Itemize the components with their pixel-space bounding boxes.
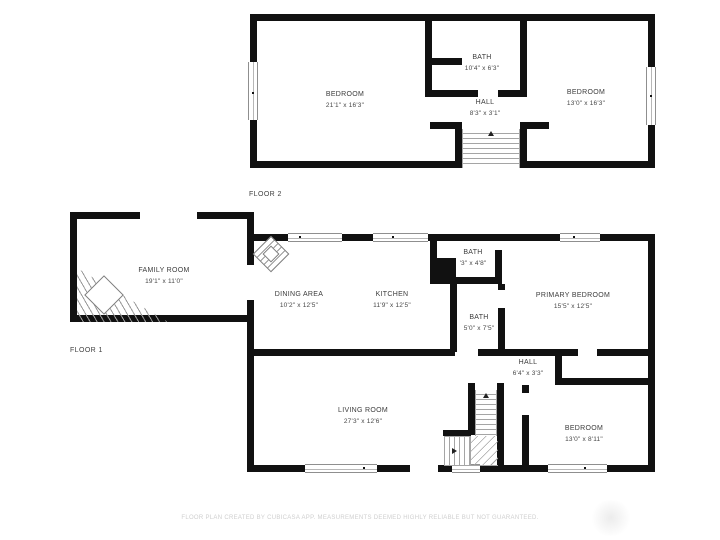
room-dimensions: 27'3" x 12'6" [338, 416, 388, 427]
wall [425, 58, 462, 65]
room-dimensions: 13'0" x 16'3" [567, 98, 605, 109]
room-name: DINING AREA [275, 289, 323, 300]
dimension-tick [344, 164, 346, 166]
wall [497, 383, 504, 467]
room-name: BEDROOM [326, 89, 364, 100]
wall [520, 122, 527, 168]
room-label-primary-bedroom: PRIMARY BEDROOM 15'5" x 12'5" [536, 290, 610, 312]
wall [197, 212, 254, 219]
wall [478, 349, 578, 356]
wall [555, 378, 648, 385]
window [248, 62, 258, 120]
window [560, 233, 600, 242]
dimension-tick [650, 95, 652, 97]
wall [247, 300, 254, 472]
wall [522, 385, 529, 393]
stair-direction-arrow-icon [452, 448, 457, 454]
room-label-bath-f2: BATH 10'4" x 6'3" [465, 52, 499, 74]
dimension-tick [164, 317, 166, 319]
wall [250, 161, 462, 168]
fireplace-core [263, 246, 280, 263]
wall [70, 212, 77, 322]
room-label-dining-area: DINING AREA 10'2" x 12'5" [275, 289, 323, 311]
room-name: HALL [513, 357, 544, 368]
room-dimensions: 13'0" x 8'11" [565, 434, 603, 445]
wall [247, 212, 254, 265]
dimension-tick [299, 236, 301, 238]
wall [520, 14, 527, 96]
room-name: KITCHEN [373, 289, 411, 300]
floor-1-label: FLOOR 1 [70, 347, 103, 354]
room-name: BATH [465, 52, 499, 63]
dimension-tick [363, 467, 365, 469]
cubicasa-watermark [590, 500, 632, 536]
wall [468, 383, 475, 435]
room-label-living-room: LIVING ROOM 27'3" x 12'6" [338, 405, 388, 427]
dimension-tick [252, 92, 254, 94]
wall [455, 122, 462, 168]
room-name: BATH [464, 312, 495, 323]
room-dimensions: 5'0" x 7'5" [464, 323, 495, 334]
dimension-tick [584, 467, 586, 469]
disclaimer-text: FLOOR PLAN CREATED BY CUBICASA APP. MEAS… [181, 515, 538, 521]
wall [250, 14, 655, 21]
room-label-hall-f2: HALL 8'3" x 3'1" [470, 97, 501, 119]
winder-stairs [470, 436, 498, 466]
dimension-tick [573, 236, 575, 238]
room-label-bedroom-f1: BEDROOM 13'0" x 8'11" [565, 423, 603, 445]
wall [597, 349, 648, 356]
room-dimensions: 15'5" x 12'5" [536, 301, 610, 312]
room-dimensions: 8'3" x 3'1" [470, 108, 501, 119]
wall [498, 90, 527, 97]
room-name: BATH [460, 247, 487, 258]
window [305, 464, 377, 473]
wall [520, 161, 655, 168]
room-dimensions: 10'2" x 12'5" [275, 300, 323, 311]
room-dimensions: 21'1" x 16'3" [326, 100, 364, 111]
room-name: HALL [470, 97, 501, 108]
room-name: BEDROOM [565, 423, 603, 434]
wall [456, 277, 502, 284]
stair-direction-arrow-icon [483, 393, 489, 398]
room-name: PRIMARY BEDROOM [536, 290, 610, 301]
room-dimensions: 10'4" x 6'3" [465, 63, 499, 74]
dimension-tick [392, 236, 394, 238]
window [548, 464, 607, 473]
room-label-family-room: FAMILY ROOM 19'1" x 11'0" [138, 265, 189, 287]
room-name: FAMILY ROOM [138, 265, 189, 276]
room-dimensions: 11'9" x 12'5" [373, 300, 411, 311]
room-label-kitchen: KITCHEN 11'9" x 12'5" [373, 289, 411, 311]
wall [425, 14, 432, 96]
window [288, 233, 342, 242]
dimension-tick [344, 16, 346, 18]
window [373, 233, 428, 242]
room-label-bedroom-left-f2: BEDROOM 21'1" x 16'3" [326, 89, 364, 111]
stair-direction-arrow-icon [488, 131, 494, 136]
room-label-bedroom-right-f2: BEDROOM 13'0" x 16'3" [567, 87, 605, 109]
room-label-bath-small: BATH '3" x 4'8" [460, 247, 487, 269]
wall [70, 212, 140, 219]
staircase [444, 436, 471, 466]
room-label-bath: BATH 5'0" x 7'5" [464, 312, 495, 334]
room-name: BEDROOM [567, 87, 605, 98]
wall [498, 308, 505, 352]
room-dimensions: 19'1" x 11'0" [138, 276, 189, 287]
wall [430, 241, 437, 260]
wall [498, 284, 505, 290]
wall [522, 415, 529, 472]
room-dimensions: '3" x 4'8" [460, 258, 487, 269]
wall [450, 284, 457, 352]
room-name: LIVING ROOM [338, 405, 388, 416]
floor-2-label: FLOOR 2 [249, 191, 282, 198]
room-label-hall-f1: HALL 6'4" x 3'3" [513, 357, 544, 379]
wall [425, 90, 478, 97]
room-dimensions: 6'4" x 3'3" [513, 368, 544, 379]
wall [254, 349, 455, 356]
floor-plan-canvas: BEDROOM 21'1" x 16'3" BATH 10'4" x 6'3" … [0, 0, 720, 540]
fireplace [253, 236, 290, 273]
chimney [430, 258, 456, 284]
wall [648, 234, 655, 472]
